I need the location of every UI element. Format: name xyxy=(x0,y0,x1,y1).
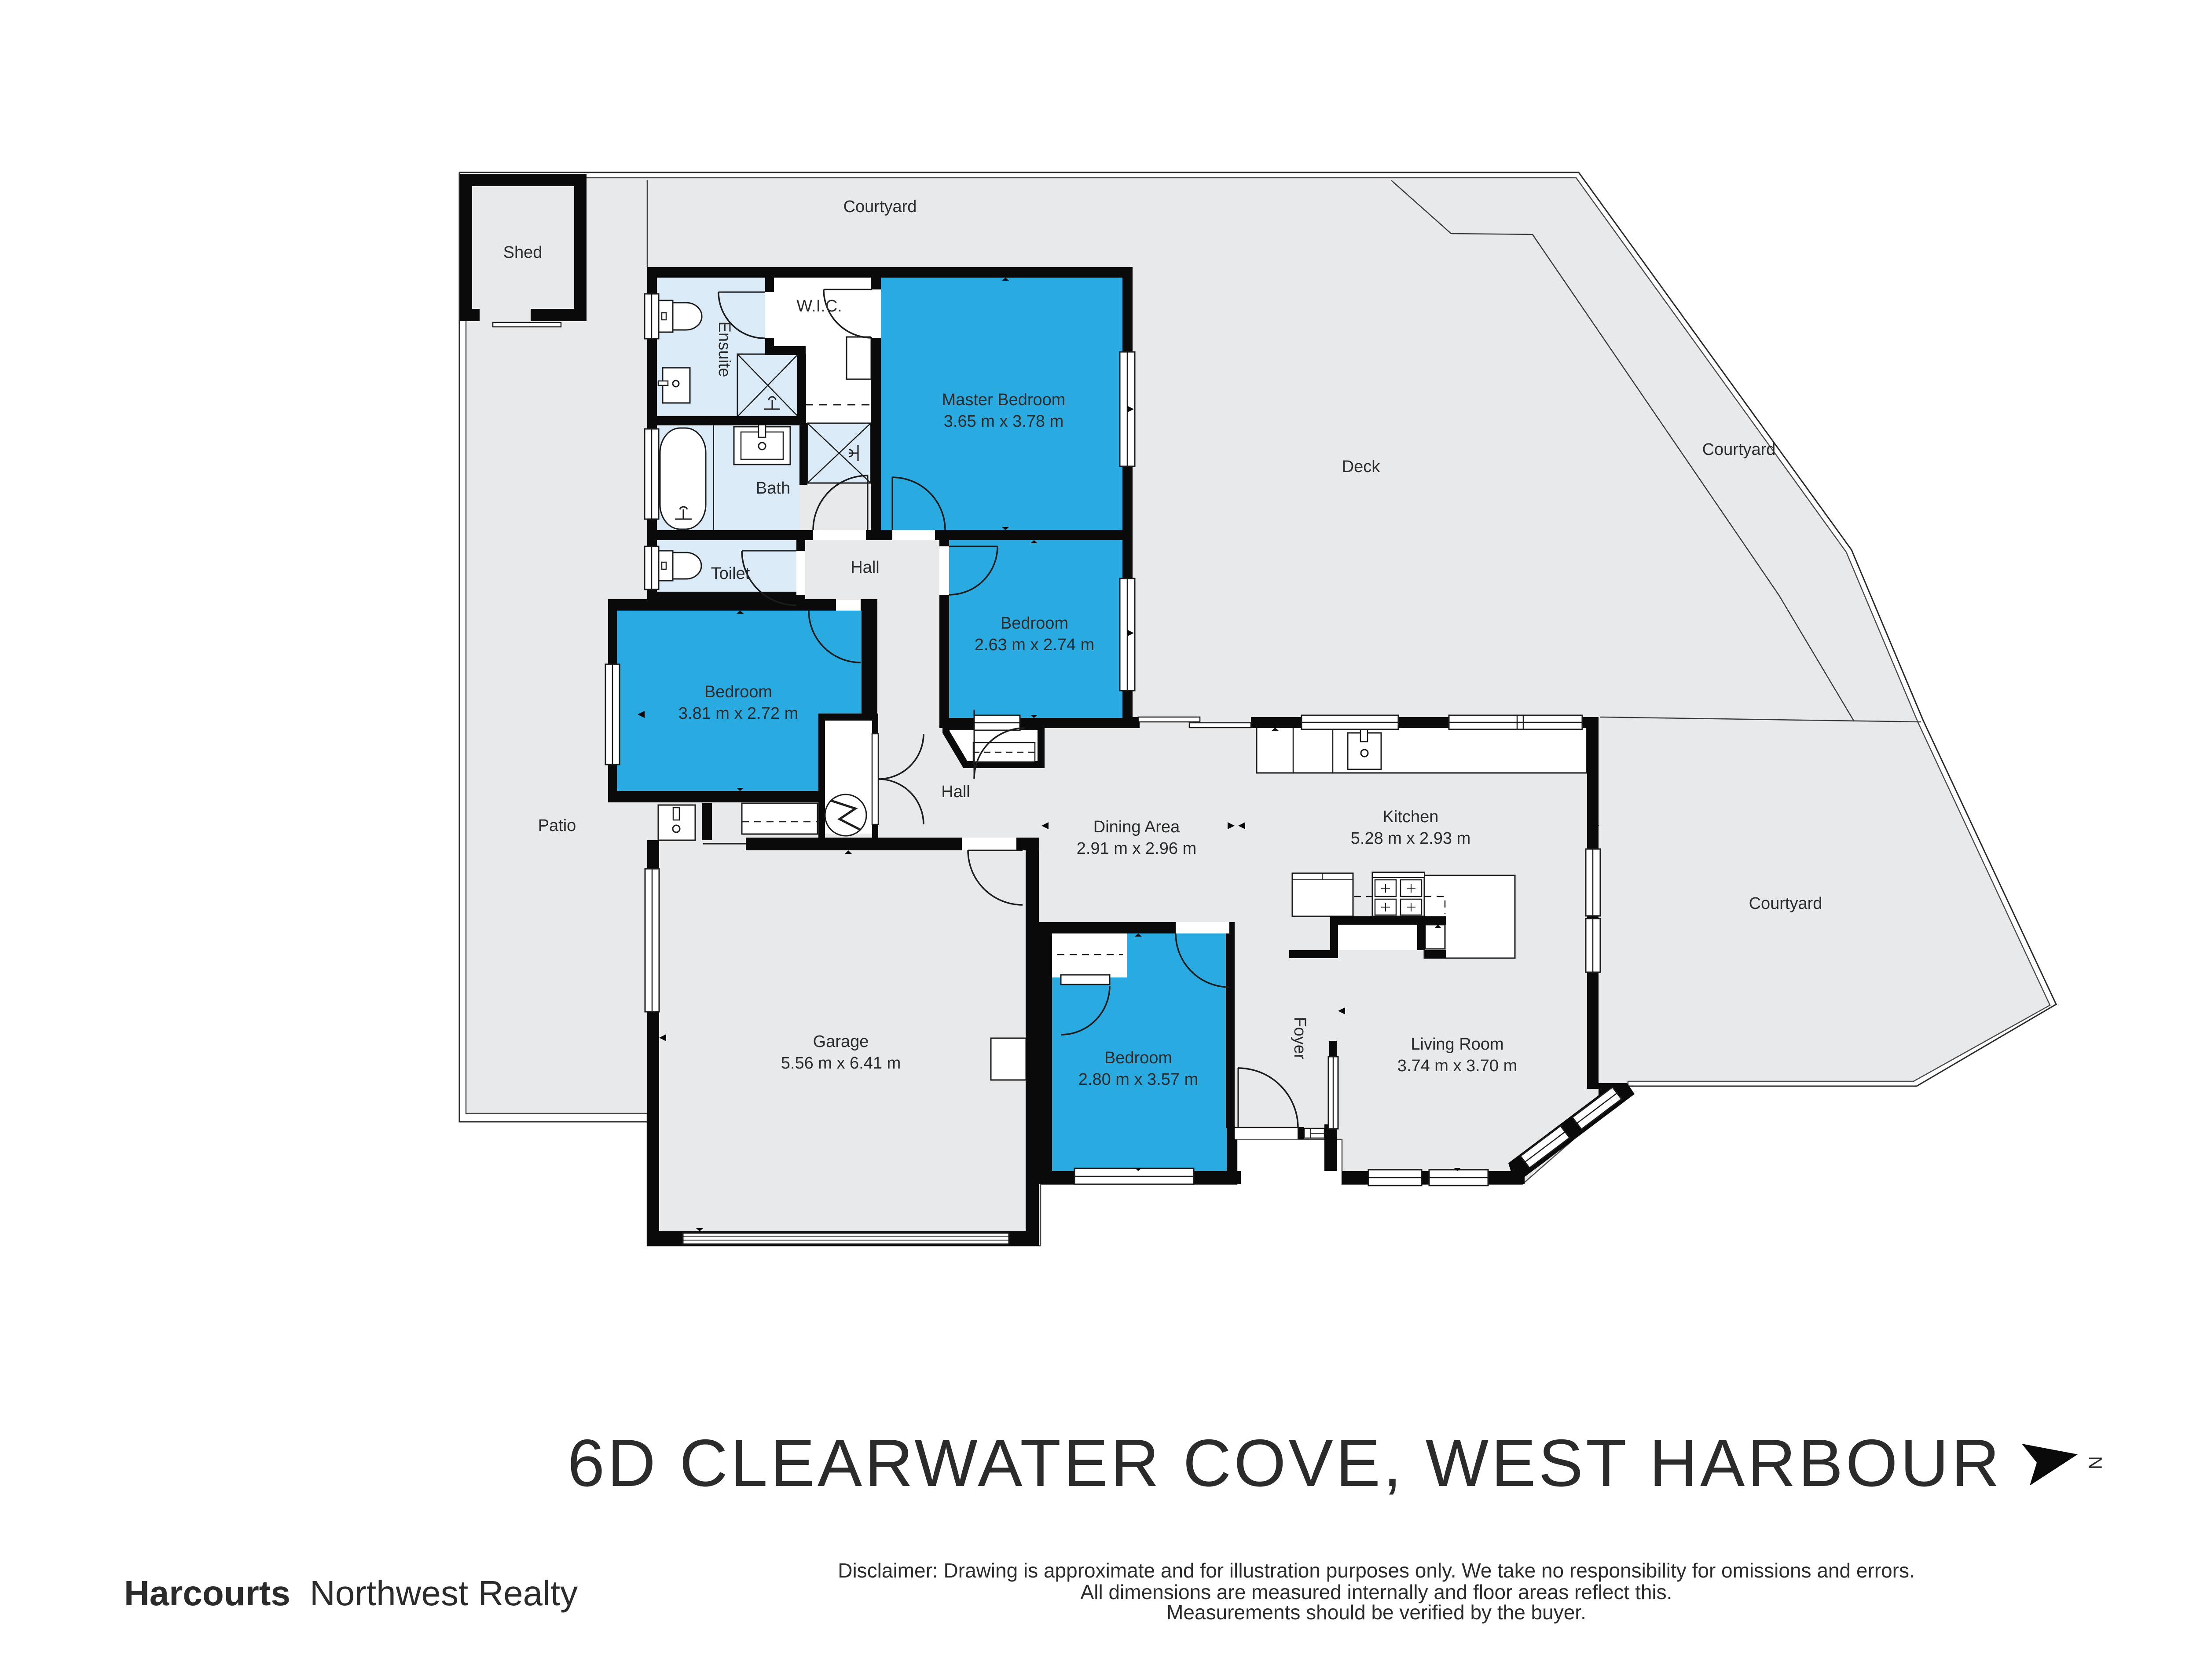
svg-text:Courtyard: Courtyard xyxy=(1702,440,1776,459)
svg-text:Shed: Shed xyxy=(503,243,543,262)
svg-text:Bedroom: Bedroom xyxy=(704,683,772,701)
svg-text:2.63 m x 2.74 m: 2.63 m x 2.74 m xyxy=(975,636,1094,654)
svg-text:5.56 m x 6.41 m: 5.56 m x 6.41 m xyxy=(781,1054,901,1072)
svg-text:Patio: Patio xyxy=(538,816,576,835)
svg-text:3.65 m x 3.78 m: 3.65 m x 3.78 m xyxy=(944,412,1063,431)
svg-text:5.28 m x 2.93 m: 5.28 m x 2.93 m xyxy=(1351,829,1470,848)
svg-text:Foyer: Foyer xyxy=(1291,1017,1309,1059)
svg-text:Disclaimer: Drawing is approxi: Disclaimer: Drawing is approximate and f… xyxy=(838,1559,1915,1582)
svg-text:Ensuite: Ensuite xyxy=(715,322,733,377)
svg-text:2.91 m x 2.96 m: 2.91 m x 2.96 m xyxy=(1077,839,1196,858)
svg-text:3.74 m x 3.70 m: 3.74 m x 3.70 m xyxy=(1397,1057,1517,1075)
svg-text:Living Room: Living Room xyxy=(1411,1035,1503,1054)
svg-text:Deck: Deck xyxy=(1342,458,1381,476)
svg-text:N: N xyxy=(2085,1456,2106,1469)
svg-text:Measurements should be verifie: Measurements should be verified by the b… xyxy=(1166,1601,1586,1624)
svg-text:All dimensions are measured in: All dimensions are measured internally a… xyxy=(1081,1581,1672,1603)
svg-text:Garage: Garage xyxy=(813,1032,869,1051)
svg-text:Master Bedroom: Master Bedroom xyxy=(942,391,1066,409)
svg-text:Dining Area: Dining Area xyxy=(1093,818,1180,836)
svg-text:2.80 m x 3.57 m: 2.80 m x 3.57 m xyxy=(1078,1070,1198,1089)
svg-text:6D CLEARWATER COVE, WEST HARBO: 6D CLEARWATER COVE, WEST HARBOUR xyxy=(568,1426,2002,1501)
svg-text:Bedroom: Bedroom xyxy=(1001,614,1068,633)
svg-text:Kitchen: Kitchen xyxy=(1383,808,1439,826)
svg-text:Northwest Realty: Northwest Realty xyxy=(310,1574,578,1613)
svg-text:Bath: Bath xyxy=(756,479,790,498)
svg-text:Courtyard: Courtyard xyxy=(1749,894,1822,913)
svg-text:Harcourts: Harcourts xyxy=(124,1574,290,1613)
svg-text:Hall: Hall xyxy=(941,783,970,801)
svg-text:Courtyard: Courtyard xyxy=(843,198,917,216)
svg-text:W.I.C.: W.I.C. xyxy=(796,297,842,315)
svg-text:3.81 m x 2.72 m: 3.81 m x 2.72 m xyxy=(678,704,798,723)
svg-text:Toilet: Toilet xyxy=(711,564,750,583)
svg-text:Hall: Hall xyxy=(851,558,879,577)
svg-text:Bedroom: Bedroom xyxy=(1104,1049,1172,1067)
